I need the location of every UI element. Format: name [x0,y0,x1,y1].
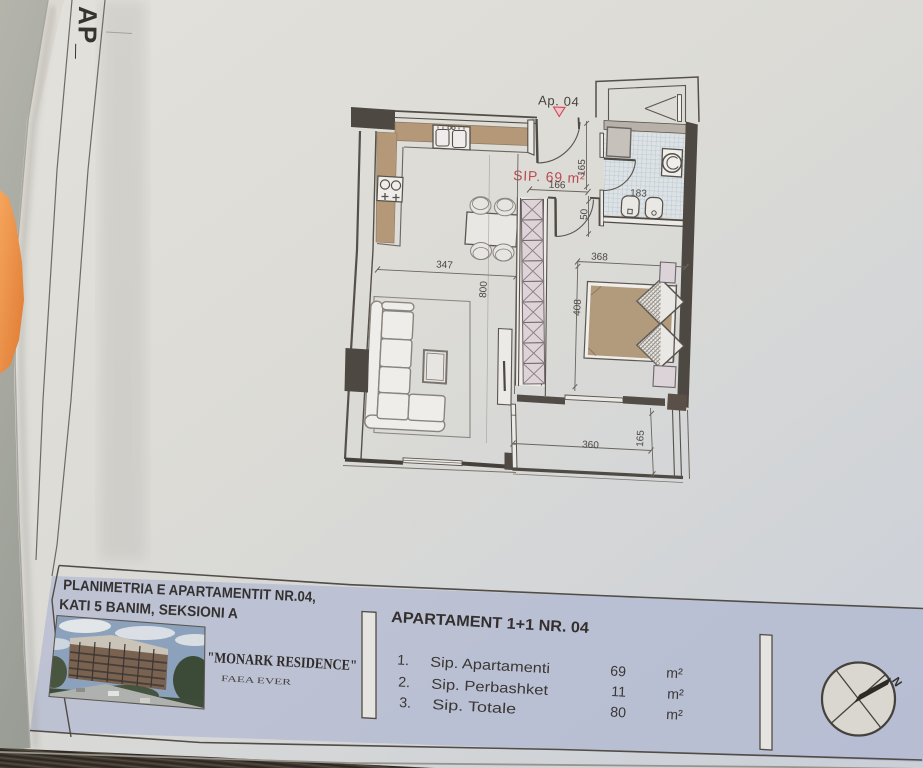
svg-text:183: 183 [630,188,648,200]
svg-text:166: 166 [549,180,567,192]
svg-text:347: 347 [436,260,454,272]
svg-text:AP_: AP_ [72,6,103,60]
svg-text:165: 165 [577,159,589,176]
svg-text:3.: 3. [399,695,412,712]
svg-text:360: 360 [582,440,600,452]
svg-text:1.: 1. [397,653,410,670]
svg-text:69: 69 [610,664,627,681]
svg-text:165: 165 [635,429,647,447]
svg-text:80: 80 [610,705,627,722]
svg-text:m²: m² [666,666,684,683]
svg-text:50: 50 [579,208,590,220]
svg-text:800: 800 [478,280,490,298]
svg-text:368: 368 [591,252,609,264]
svg-text:408: 408 [572,298,584,316]
svg-text:m²: m² [666,707,684,724]
svg-text:m²: m² [667,687,685,704]
svg-text:11: 11 [611,684,627,701]
svg-text:2.: 2. [398,675,411,692]
